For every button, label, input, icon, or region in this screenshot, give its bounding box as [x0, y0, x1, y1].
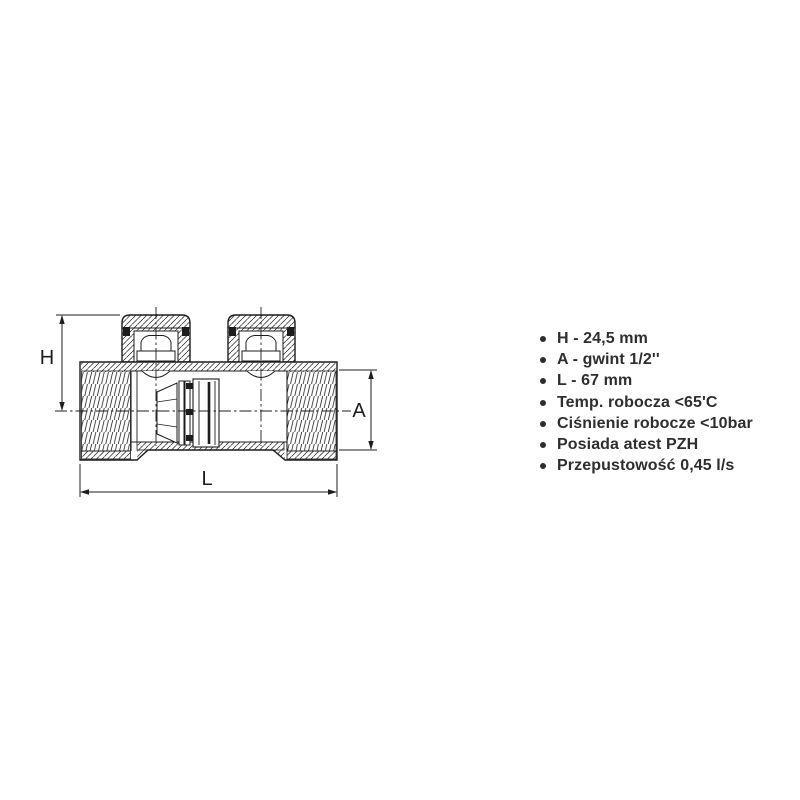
spec-item-text: L - 67 mm: [557, 372, 632, 390]
spec-item-text: H - 24,5 mm: [557, 330, 648, 348]
bullet-dot-icon: [540, 378, 546, 384]
o-ring-seal: [287, 327, 294, 336]
right-cap: [228, 315, 295, 362]
spec-list-item: A - gwint 1/2'': [540, 349, 753, 370]
bullet-dot-icon: [540, 357, 546, 363]
right-female-thread: [287, 371, 336, 459]
bullet-dot-icon: [540, 336, 546, 342]
bullet-dot-icon: [540, 463, 546, 469]
valve-body: [55, 307, 351, 460]
bullet-dot-icon: [540, 421, 546, 427]
o-ring-seal: [123, 327, 130, 336]
spec-list: H - 24,5 mm A - gwint 1/2'' L - 67 mm Te…: [540, 328, 753, 477]
spec-list-item: L - 67 mm: [540, 371, 753, 392]
check-valve-cartridge: [157, 379, 219, 447]
spec-item-text: Przepustowość 0,45 l/s: [557, 457, 734, 475]
o-ring-seal: [182, 327, 189, 336]
dimension-a: A: [339, 370, 377, 450]
spec-list-item: H - 24,5 mm: [540, 328, 753, 349]
page: H A L: [0, 0, 800, 800]
spec-item-text: Posiada atest PZH: [557, 436, 698, 454]
left-female-thread: [82, 371, 132, 459]
spec-list-item: Posiada atest PZH: [540, 434, 753, 455]
spec-list-item: Przepustowość 0,45 l/s: [540, 456, 753, 477]
bullet-dot-icon: [540, 400, 546, 406]
spec-list-item: Ciśnienie robocze <10bar: [540, 413, 753, 434]
top-wall-band: [81, 363, 336, 371]
dimension-a-label: A: [352, 400, 366, 422]
dimension-h-label: H: [40, 347, 54, 369]
bullet-dot-icon: [540, 442, 546, 448]
o-ring-seal: [229, 327, 236, 336]
dimension-l: L: [80, 464, 337, 497]
spec-item-text: A - gwint 1/2'': [557, 351, 660, 369]
spec-item-text: Temp. robocza <65'C: [557, 394, 718, 412]
dimension-l-label: L: [201, 468, 212, 490]
spec-list-item: Temp. robocza <65'C: [540, 392, 753, 413]
spec-item-text: Ciśnienie robocze <10bar: [557, 415, 753, 433]
